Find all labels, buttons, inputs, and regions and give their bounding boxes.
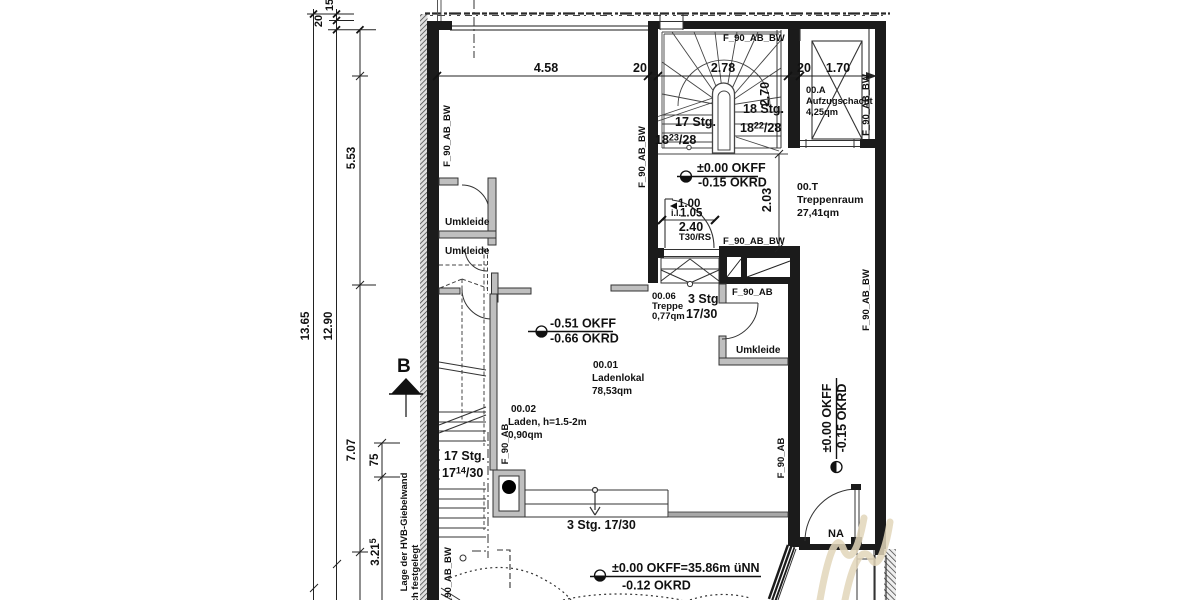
svg-text:-0.15 OKRD: -0.15 OKRD (698, 176, 767, 190)
svg-text:00.A: 00.A (806, 85, 826, 95)
svg-text:17 Stg.: 17 Stg. (675, 115, 716, 129)
svg-text:0,90qm: 0,90qm (508, 430, 543, 441)
svg-text:F_90_AB_BW: F_90_AB_BW (637, 126, 648, 188)
svg-text:-0.66 OKRD: -0.66 OKRD (550, 332, 619, 346)
svg-text:T30/RS: T30/RS (679, 232, 711, 243)
svg-text:F_90_AB_BW: F_90_AB_BW (861, 269, 872, 331)
svg-text:15: 15 (324, 0, 336, 11)
svg-text:20: 20 (797, 61, 811, 75)
svg-text:Lage der HVB-Giebelwand: Lage der HVB-Giebelwand (399, 472, 410, 591)
svg-text:27,41qm: 27,41qm (797, 207, 839, 219)
svg-text:12.90: 12.90 (323, 312, 335, 341)
svg-text:NA: NA (828, 528, 844, 540)
svg-text:18 Stg.: 18 Stg. (743, 102, 784, 116)
svg-text:±0.00 OKFF: ±0.00 OKFF (697, 161, 766, 175)
svg-text:5.53: 5.53 (346, 147, 358, 169)
svg-text:Treppenraum: Treppenraum (797, 194, 864, 206)
svg-text:78,53qm: 78,53qm (592, 386, 632, 397)
svg-text:Ladenlokal: Ladenlokal (592, 373, 644, 384)
svg-text:Umkleide: Umkleide (445, 246, 490, 257)
svg-text:-0.15 OKRD: -0.15 OKRD (835, 384, 849, 453)
svg-text:±0.00 OKFF=35.86m üNN: ±0.00 OKFF=35.86m üNN (612, 561, 760, 575)
svg-text:F_90_AB: F_90_AB (500, 424, 511, 465)
svg-text:2.78: 2.78 (711, 61, 735, 75)
svg-text:F_90_AB: F_90_AB (732, 287, 773, 298)
svg-text:75: 75 (369, 453, 381, 466)
svg-text:17/30: 17/30 (686, 307, 717, 321)
svg-text:F_90_AB_BW: F_90_AB_BW (442, 105, 453, 167)
svg-text:Umkleide: Umkleide (736, 345, 781, 356)
svg-text:F_90_AB_BW: F_90_AB_BW (861, 74, 872, 136)
svg-text:Laden, h=1.5-2m: Laden, h=1.5-2m (508, 417, 587, 428)
svg-text:0,77qm: 0,77qm (652, 311, 685, 322)
svg-text:00.01: 00.01 (593, 360, 618, 371)
svg-text:ch festgelegt: ch festgelegt (410, 544, 421, 600)
svg-text:00.T: 00.T (797, 181, 819, 193)
svg-text:-0.12 OKRD: -0.12 OKRD (622, 579, 691, 593)
svg-text:Umkleide: Umkleide (445, 217, 490, 228)
svg-text:3 Stg. 17/30: 3 Stg. 17/30 (567, 518, 636, 532)
svg-text:F_90_AB_BW: F_90_AB_BW (723, 236, 785, 247)
svg-text:17 Stg.: 17 Stg. (444, 449, 485, 463)
svg-text:±0.00 OKFF: ±0.00 OKFF (820, 383, 834, 452)
svg-text:-0.51 OKFF: -0.51 OKFF (550, 317, 616, 331)
svg-text:20: 20 (313, 15, 325, 27)
svg-text:13.65: 13.65 (300, 311, 312, 340)
svg-text:1.70: 1.70 (826, 61, 850, 75)
svg-text:20: 20 (633, 61, 647, 75)
svg-text:F_90_AB_BW: F_90_AB_BW (443, 547, 454, 600)
svg-text:00.02: 00.02 (511, 404, 536, 415)
svg-text:4.58: 4.58 (534, 61, 558, 75)
svg-text:2.03: 2.03 (760, 188, 774, 212)
svg-text:3 Stg: 3 Stg (688, 292, 719, 306)
svg-text:1.05: 1.05 (680, 208, 703, 220)
svg-text:7.07: 7.07 (346, 439, 358, 461)
svg-text:4,25qm: 4,25qm (806, 107, 838, 117)
svg-text:B: B (397, 356, 411, 377)
svg-text:F_90_AB: F_90_AB (776, 438, 787, 479)
svg-text:F_90_AB_BW: F_90_AB_BW (723, 33, 785, 44)
